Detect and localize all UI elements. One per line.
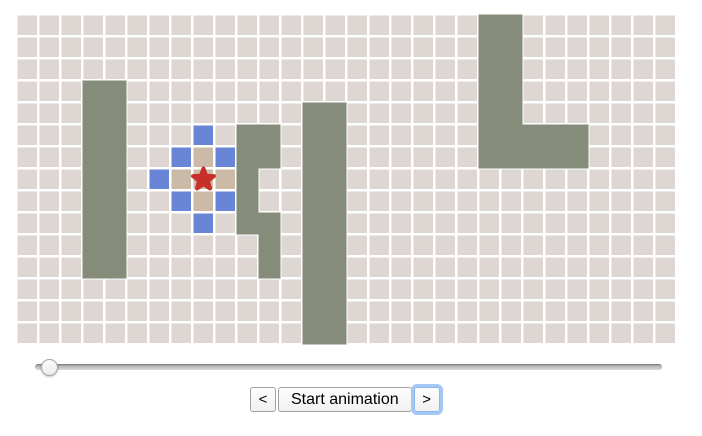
grid-cell[interactable] <box>480 280 500 300</box>
grid-cell[interactable] <box>590 104 610 124</box>
grid-cell[interactable] <box>634 324 654 344</box>
wall-cell[interactable] <box>523 125 545 147</box>
wall-cell[interactable] <box>105 147 127 169</box>
grid-cell[interactable] <box>656 324 676 344</box>
wall-cell[interactable] <box>501 125 523 147</box>
grid-cell[interactable] <box>568 170 588 190</box>
grid-cell[interactable] <box>348 170 368 190</box>
grid-cell[interactable] <box>84 60 104 80</box>
grid-cell[interactable] <box>62 16 82 36</box>
grid-cell[interactable] <box>282 324 302 344</box>
grid-cell[interactable] <box>524 104 544 124</box>
grid-cell[interactable] <box>502 192 522 212</box>
grid-cell[interactable] <box>436 126 456 146</box>
grid-cell[interactable] <box>40 82 60 102</box>
grid-cell[interactable] <box>194 38 214 58</box>
grid-cell[interactable] <box>590 16 610 36</box>
grid-cell[interactable] <box>282 280 302 300</box>
grid-cell[interactable] <box>128 148 148 168</box>
grid-cell[interactable] <box>546 16 566 36</box>
timeline-slider-track[interactable] <box>35 364 662 370</box>
grid-cell[interactable] <box>590 192 610 212</box>
grid-cell[interactable] <box>414 258 434 278</box>
wall-cell[interactable] <box>325 125 347 147</box>
grid-cell[interactable] <box>634 60 654 80</box>
grid-cell[interactable] <box>392 16 412 36</box>
grid-cell[interactable] <box>304 60 324 80</box>
grid-cell[interactable] <box>480 324 500 344</box>
grid-cell[interactable] <box>304 38 324 58</box>
grid-cell[interactable] <box>458 214 478 234</box>
wall-cell[interactable] <box>83 125 105 147</box>
grid-cell[interactable] <box>436 60 456 80</box>
grid-cell[interactable] <box>392 38 412 58</box>
grid-cell[interactable] <box>370 16 390 36</box>
prev-step-button[interactable]: < <box>250 387 276 412</box>
wall-cell[interactable] <box>259 125 281 147</box>
wall-cell[interactable] <box>303 191 325 213</box>
grid-cell[interactable] <box>392 126 412 146</box>
grid-cell[interactable] <box>634 214 654 234</box>
grid-cell[interactable] <box>370 148 390 168</box>
grid-cell[interactable] <box>40 236 60 256</box>
wall-cell[interactable] <box>479 103 501 125</box>
grid-cell[interactable] <box>128 126 148 146</box>
wall-cell[interactable] <box>501 103 523 125</box>
grid-cell[interactable] <box>260 302 280 322</box>
grid-cell[interactable] <box>128 236 148 256</box>
grid-cell[interactable] <box>128 214 148 234</box>
grid-cell[interactable] <box>392 192 412 212</box>
grid-cell[interactable] <box>18 104 38 124</box>
grid-cell[interactable] <box>568 16 588 36</box>
grid-cell[interactable] <box>546 214 566 234</box>
grid-cell[interactable] <box>172 280 192 300</box>
grid-cell[interactable] <box>150 236 170 256</box>
grid-cell[interactable] <box>634 236 654 256</box>
grid-cell[interactable] <box>282 60 302 80</box>
wall-cell[interactable] <box>237 125 259 147</box>
grid-cell[interactable] <box>282 170 302 190</box>
grid-cell[interactable] <box>634 126 654 146</box>
grid-cell[interactable] <box>546 236 566 256</box>
grid-cell[interactable] <box>128 258 148 278</box>
grid-cell[interactable] <box>172 258 192 278</box>
grid-cell[interactable] <box>590 302 610 322</box>
wall-cell[interactable] <box>501 81 523 103</box>
grid-cell[interactable] <box>40 104 60 124</box>
grid-cell[interactable] <box>348 82 368 102</box>
wall-cell[interactable] <box>523 147 545 169</box>
grid-cell[interactable] <box>568 280 588 300</box>
grid-cell[interactable] <box>216 324 236 344</box>
grid-cell[interactable] <box>216 82 236 102</box>
grid-cell[interactable] <box>392 236 412 256</box>
grid-cell[interactable] <box>568 82 588 102</box>
grid-cell[interactable] <box>414 170 434 190</box>
grid-cell[interactable] <box>194 16 214 36</box>
grid-cell[interactable] <box>238 82 258 102</box>
grid-cell[interactable] <box>370 258 390 278</box>
grid-cell[interactable] <box>260 60 280 80</box>
grid-cell[interactable] <box>172 82 192 102</box>
grid-cell[interactable] <box>392 214 412 234</box>
grid-cell[interactable] <box>348 214 368 234</box>
grid-cell[interactable] <box>150 82 170 102</box>
grid-cell[interactable] <box>656 60 676 80</box>
wall-cell[interactable] <box>259 213 281 235</box>
grid-cell[interactable] <box>392 60 412 80</box>
wall-cell[interactable] <box>303 257 325 279</box>
wall-cell[interactable] <box>237 147 259 169</box>
grid-cell[interactable] <box>502 170 522 190</box>
grid-cell[interactable] <box>480 192 500 212</box>
wall-cell[interactable] <box>83 235 105 257</box>
grid-cell[interactable] <box>150 38 170 58</box>
wall-cell[interactable] <box>479 59 501 81</box>
grid-cell[interactable] <box>502 258 522 278</box>
grid-cell[interactable] <box>568 302 588 322</box>
grid-cell[interactable] <box>480 236 500 256</box>
grid-cell[interactable] <box>62 38 82 58</box>
grid-cell[interactable] <box>282 126 302 146</box>
grid-cell[interactable] <box>18 192 38 212</box>
grid-cell[interactable] <box>260 16 280 36</box>
grid-cell[interactable] <box>590 60 610 80</box>
grid-cell[interactable] <box>568 192 588 212</box>
grid-cell[interactable] <box>128 170 148 190</box>
grid-cell[interactable] <box>238 16 258 36</box>
grid-cell[interactable] <box>436 148 456 168</box>
grid-cell[interactable] <box>568 324 588 344</box>
wall-cell[interactable] <box>501 37 523 59</box>
grid-cell[interactable] <box>370 82 390 102</box>
grid-cell[interactable] <box>370 302 390 322</box>
grid-cell[interactable] <box>128 38 148 58</box>
grid-cell[interactable] <box>458 38 478 58</box>
grid-cell[interactable] <box>502 302 522 322</box>
grid-cell[interactable] <box>172 302 192 322</box>
wall-cell[interactable] <box>479 125 501 147</box>
grid-cell[interactable] <box>612 302 632 322</box>
wall-cell[interactable] <box>479 15 501 37</box>
grid-cell[interactable] <box>524 324 544 344</box>
grid-cell[interactable] <box>40 16 60 36</box>
grid-cell[interactable] <box>62 82 82 102</box>
grid-cell[interactable] <box>62 214 82 234</box>
grid-cell[interactable] <box>546 324 566 344</box>
grid-cell[interactable] <box>458 82 478 102</box>
grid-cell[interactable] <box>172 16 192 36</box>
grid-cell[interactable] <box>436 38 456 58</box>
grid-cell[interactable] <box>480 302 500 322</box>
grid-cell[interactable] <box>194 258 214 278</box>
grid-cell[interactable] <box>436 104 456 124</box>
grid-cell[interactable] <box>18 258 38 278</box>
grid-cell[interactable] <box>348 38 368 58</box>
grid-cell[interactable] <box>40 214 60 234</box>
grid-cell[interactable] <box>238 60 258 80</box>
grid-cell[interactable] <box>480 258 500 278</box>
grid-cell[interactable] <box>612 258 632 278</box>
grid-cell[interactable] <box>392 148 412 168</box>
grid-cell[interactable] <box>370 38 390 58</box>
grid-cell[interactable] <box>216 280 236 300</box>
grid-cell[interactable] <box>172 60 192 80</box>
grid-cell[interactable] <box>634 192 654 212</box>
wall-cell[interactable] <box>325 191 347 213</box>
grid-cell[interactable] <box>546 192 566 212</box>
grid-cell[interactable] <box>348 236 368 256</box>
grid-cell[interactable] <box>370 170 390 190</box>
grid-cell[interactable] <box>106 16 126 36</box>
grid-cell[interactable] <box>40 60 60 80</box>
grid-cell[interactable] <box>612 126 632 146</box>
grid-cell[interactable] <box>524 170 544 190</box>
grid-cell[interactable] <box>656 170 676 190</box>
wall-cell[interactable] <box>501 15 523 37</box>
grid-cell[interactable] <box>436 170 456 190</box>
grid-cell[interactable] <box>370 324 390 344</box>
grid-cell[interactable] <box>612 16 632 36</box>
grid-cell[interactable] <box>348 258 368 278</box>
wall-cell[interactable] <box>325 213 347 235</box>
grid-cell[interactable] <box>414 192 434 212</box>
wall-cell[interactable] <box>105 257 127 279</box>
grid-cell[interactable] <box>656 82 676 102</box>
grid-cell[interactable] <box>436 82 456 102</box>
grid-cell[interactable] <box>348 16 368 36</box>
grid-cell[interactable] <box>62 60 82 80</box>
wall-cell[interactable] <box>105 235 127 257</box>
grid-cell[interactable] <box>304 16 324 36</box>
grid-cell[interactable] <box>634 82 654 102</box>
grid-cell[interactable] <box>590 280 610 300</box>
grid-cell[interactable] <box>546 82 566 102</box>
wall-cell[interactable] <box>303 235 325 257</box>
grid-cell[interactable] <box>260 38 280 58</box>
grid-cell[interactable] <box>634 148 654 168</box>
grid-cell[interactable] <box>216 258 236 278</box>
grid-cell[interactable] <box>194 236 214 256</box>
grid-cell[interactable] <box>128 302 148 322</box>
grid-cell[interactable] <box>282 148 302 168</box>
grid-cell[interactable] <box>282 214 302 234</box>
grid-cell[interactable] <box>612 82 632 102</box>
grid-cell[interactable] <box>524 16 544 36</box>
grid-cell[interactable] <box>260 192 280 212</box>
grid-cell[interactable] <box>414 82 434 102</box>
grid-cell[interactable] <box>590 148 610 168</box>
grid-cell[interactable] <box>414 280 434 300</box>
grid-cell[interactable] <box>436 302 456 322</box>
grid-cell[interactable] <box>612 280 632 300</box>
grid-cell[interactable] <box>326 82 346 102</box>
pathfinding-grid[interactable] <box>0 0 702 352</box>
grid-cell[interactable] <box>18 126 38 146</box>
grid-cell[interactable] <box>128 324 148 344</box>
grid-cell[interactable] <box>348 60 368 80</box>
grid-cell[interactable] <box>18 214 38 234</box>
grid-cell[interactable] <box>656 104 676 124</box>
grid-cell[interactable] <box>656 192 676 212</box>
grid-cell[interactable] <box>216 38 236 58</box>
wall-cell[interactable] <box>479 81 501 103</box>
grid-cell[interactable] <box>348 126 368 146</box>
grid-cell[interactable] <box>502 236 522 256</box>
grid-cell[interactable] <box>216 104 236 124</box>
grid-cell[interactable] <box>590 126 610 146</box>
wall-cell[interactable] <box>545 147 567 169</box>
wall-cell[interactable] <box>567 125 589 147</box>
grid-cell[interactable] <box>590 236 610 256</box>
grid-cell[interactable] <box>84 280 104 300</box>
grid-cell[interactable] <box>414 236 434 256</box>
grid-cell[interactable] <box>62 302 82 322</box>
grid-cell[interactable] <box>656 126 676 146</box>
grid-cell[interactable] <box>194 302 214 322</box>
grid-cell[interactable] <box>502 280 522 300</box>
grid-cell[interactable] <box>612 192 632 212</box>
grid-cell[interactable] <box>524 38 544 58</box>
wall-cell[interactable] <box>83 147 105 169</box>
wall-cell[interactable] <box>325 235 347 257</box>
next-step-button[interactable]: > <box>414 387 440 412</box>
grid-cell[interactable] <box>128 16 148 36</box>
grid-cell[interactable] <box>634 280 654 300</box>
grid-cell[interactable] <box>436 192 456 212</box>
grid-cell[interactable] <box>436 236 456 256</box>
grid-cell[interactable] <box>282 258 302 278</box>
grid-cell[interactable] <box>568 258 588 278</box>
grid-cell[interactable] <box>634 16 654 36</box>
grid-cell[interactable] <box>128 192 148 212</box>
grid-cell[interactable] <box>282 302 302 322</box>
grid-cell[interactable] <box>40 302 60 322</box>
wall-cell[interactable] <box>545 125 567 147</box>
grid-cell[interactable] <box>84 302 104 322</box>
grid-cell[interactable] <box>458 280 478 300</box>
grid-cell[interactable] <box>612 38 632 58</box>
wall-cell[interactable] <box>479 37 501 59</box>
wall-cell[interactable] <box>501 59 523 81</box>
grid-cell[interactable] <box>524 60 544 80</box>
grid-cell[interactable] <box>656 214 676 234</box>
grid-cell[interactable] <box>216 16 236 36</box>
grid-cell[interactable] <box>370 280 390 300</box>
grid-cell[interactable] <box>568 38 588 58</box>
grid-cell[interactable] <box>150 126 170 146</box>
grid-cell[interactable] <box>414 104 434 124</box>
grid-cell[interactable] <box>436 16 456 36</box>
grid-cell[interactable] <box>62 170 82 190</box>
grid-cell[interactable] <box>634 170 654 190</box>
grid-cell[interactable] <box>40 258 60 278</box>
grid-cell[interactable] <box>238 236 258 256</box>
grid-cell[interactable] <box>436 280 456 300</box>
grid-cell[interactable] <box>656 148 676 168</box>
grid-cell[interactable] <box>62 148 82 168</box>
grid-cell[interactable] <box>18 302 38 322</box>
wall-cell[interactable] <box>303 279 325 301</box>
grid-cell[interactable] <box>282 236 302 256</box>
grid-cell[interactable] <box>282 82 302 102</box>
wall-cell[interactable] <box>325 169 347 191</box>
grid-cell[interactable] <box>392 280 412 300</box>
wall-cell[interactable] <box>501 147 523 169</box>
grid-cell[interactable] <box>612 324 632 344</box>
grid-cell[interactable] <box>546 104 566 124</box>
grid-cell[interactable] <box>18 280 38 300</box>
grid-cell[interactable] <box>326 16 346 36</box>
wall-cell[interactable] <box>259 235 281 257</box>
grid-cell[interactable] <box>326 38 346 58</box>
grid-cell[interactable] <box>524 302 544 322</box>
grid-cell[interactable] <box>40 280 60 300</box>
grid-cell[interactable] <box>348 192 368 212</box>
wall-cell[interactable] <box>303 323 325 345</box>
grid-cell[interactable] <box>414 38 434 58</box>
grid-cell[interactable] <box>458 236 478 256</box>
grid-cell[interactable] <box>194 280 214 300</box>
wall-cell[interactable] <box>303 125 325 147</box>
grid-cell[interactable] <box>40 170 60 190</box>
grid-cell[interactable] <box>40 38 60 58</box>
grid-cell[interactable] <box>436 258 456 278</box>
grid-cell[interactable] <box>106 324 126 344</box>
grid-cell[interactable] <box>172 324 192 344</box>
wall-cell[interactable] <box>83 103 105 125</box>
wall-cell[interactable] <box>83 257 105 279</box>
grid-cell[interactable] <box>216 302 236 322</box>
grid-cell[interactable] <box>392 324 412 344</box>
grid-cell[interactable] <box>546 170 566 190</box>
grid-cell[interactable] <box>634 38 654 58</box>
wall-cell[interactable] <box>325 279 347 301</box>
grid-cell[interactable] <box>106 280 126 300</box>
wall-cell[interactable] <box>325 301 347 323</box>
grid-cell[interactable] <box>260 324 280 344</box>
grid-cell[interactable] <box>62 126 82 146</box>
wall-cell[interactable] <box>237 169 259 191</box>
grid-cell[interactable] <box>18 82 38 102</box>
grid-cell[interactable] <box>194 60 214 80</box>
grid-cell[interactable] <box>18 16 38 36</box>
grid-cell[interactable] <box>128 280 148 300</box>
grid-cell[interactable] <box>18 170 38 190</box>
grid-cell[interactable] <box>348 280 368 300</box>
grid-cell[interactable] <box>612 148 632 168</box>
grid-cell[interactable] <box>216 126 236 146</box>
grid-cell[interactable] <box>546 258 566 278</box>
grid-cell[interactable] <box>436 324 456 344</box>
wall-cell[interactable] <box>83 213 105 235</box>
grid-cell[interactable] <box>238 280 258 300</box>
grid-cell[interactable] <box>150 148 170 168</box>
grid-cell[interactable] <box>84 16 104 36</box>
grid-cell[interactable] <box>458 104 478 124</box>
grid-cell[interactable] <box>128 82 148 102</box>
grid-cell[interactable] <box>656 258 676 278</box>
grid-cell[interactable] <box>62 280 82 300</box>
grid-cell[interactable] <box>282 16 302 36</box>
grid-cell[interactable] <box>392 302 412 322</box>
wall-cell[interactable] <box>303 213 325 235</box>
grid-cell[interactable] <box>216 236 236 256</box>
grid-cell[interactable] <box>106 60 126 80</box>
grid-cell[interactable] <box>524 82 544 102</box>
wall-cell[interactable] <box>325 257 347 279</box>
